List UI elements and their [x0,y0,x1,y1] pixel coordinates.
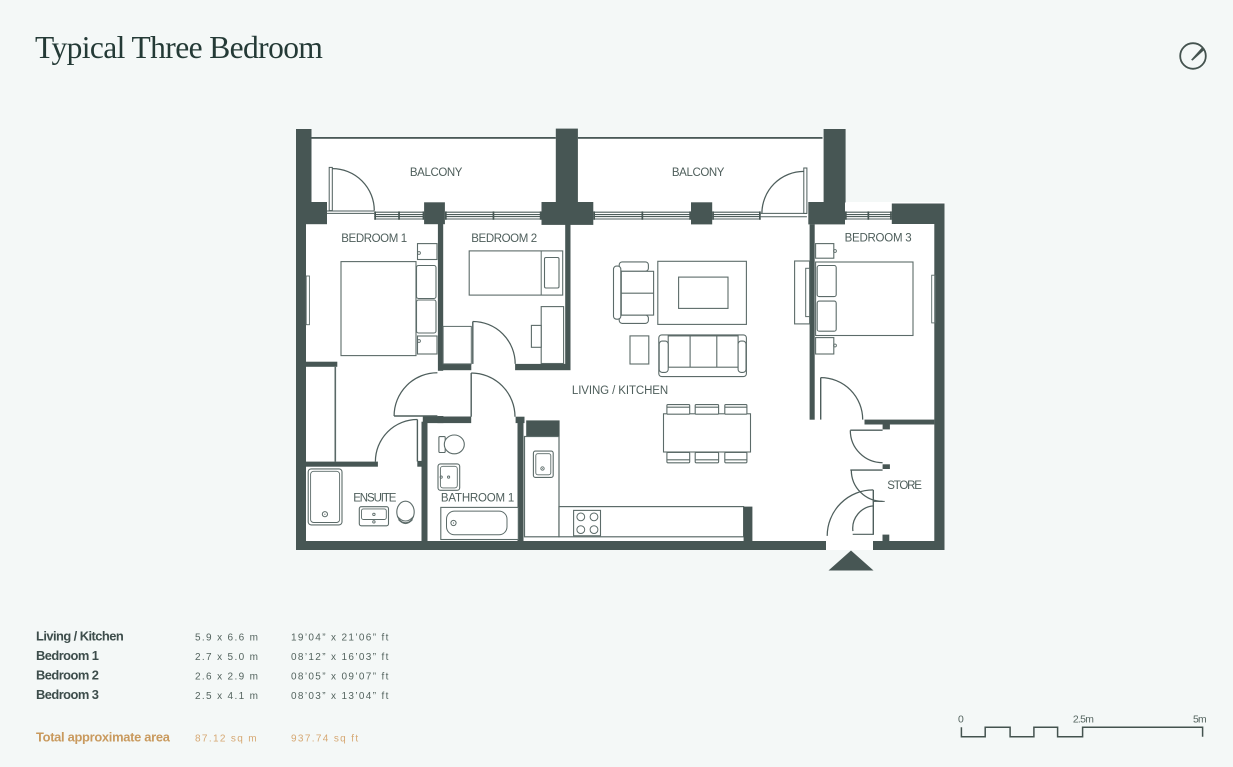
svg-text:19’04” x 21’06” ft: 19’04” x 21’06” ft [291,632,390,643]
svg-text:BATHROOM 1: BATHROOM 1 [441,493,514,505]
svg-text:87.12 sq m: 87.12 sq m [195,733,258,744]
svg-text:STORE: STORE [887,480,922,492]
svg-text:2.6 x 2.9 m: 2.6 x 2.9 m [195,671,259,682]
svg-text:08’12” x 16’03” ft: 08’12” x 16’03” ft [291,652,390,663]
svg-text:2.5m: 2.5m [1073,714,1093,725]
svg-text:Total approximate area: Total approximate area [36,729,171,744]
svg-text:Bedroom 3: Bedroom 3 [36,687,99,702]
svg-text:2.7 x 5.0 m: 2.7 x 5.0 m [195,652,259,663]
svg-text:937.74 sq ft: 937.74 sq ft [291,733,359,744]
svg-text:ENSUITE: ENSUITE [353,493,397,505]
svg-text:2.5 x 4.1 m: 2.5 x 4.1 m [195,691,259,702]
svg-text:LIVING / KITCHEN: LIVING / KITCHEN [572,385,668,397]
svg-text:BEDROOM 2: BEDROOM 2 [471,233,536,245]
svg-text:BALCONY: BALCONY [672,167,725,179]
svg-text:BEDROOM 3: BEDROOM 3 [845,233,912,245]
svg-text:BEDROOM 1: BEDROOM 1 [341,233,406,245]
svg-text:Living / Kitchen: Living / Kitchen [36,628,124,643]
svg-text:08’03” x 13’04” ft: 08’03” x 13’04” ft [291,691,390,702]
svg-text:BALCONY: BALCONY [410,167,463,179]
svg-text:5m: 5m [1193,714,1206,725]
svg-text:5.9 x 6.6 m: 5.9 x 6.6 m [195,632,259,643]
svg-text:08’05” x 09’07” ft: 08’05” x 09’07” ft [291,671,390,682]
svg-text:Bedroom 1: Bedroom 1 [36,648,99,663]
svg-text:Bedroom 2: Bedroom 2 [36,667,99,682]
svg-text:Typical Three Bedroom: Typical Three Bedroom [35,30,323,65]
